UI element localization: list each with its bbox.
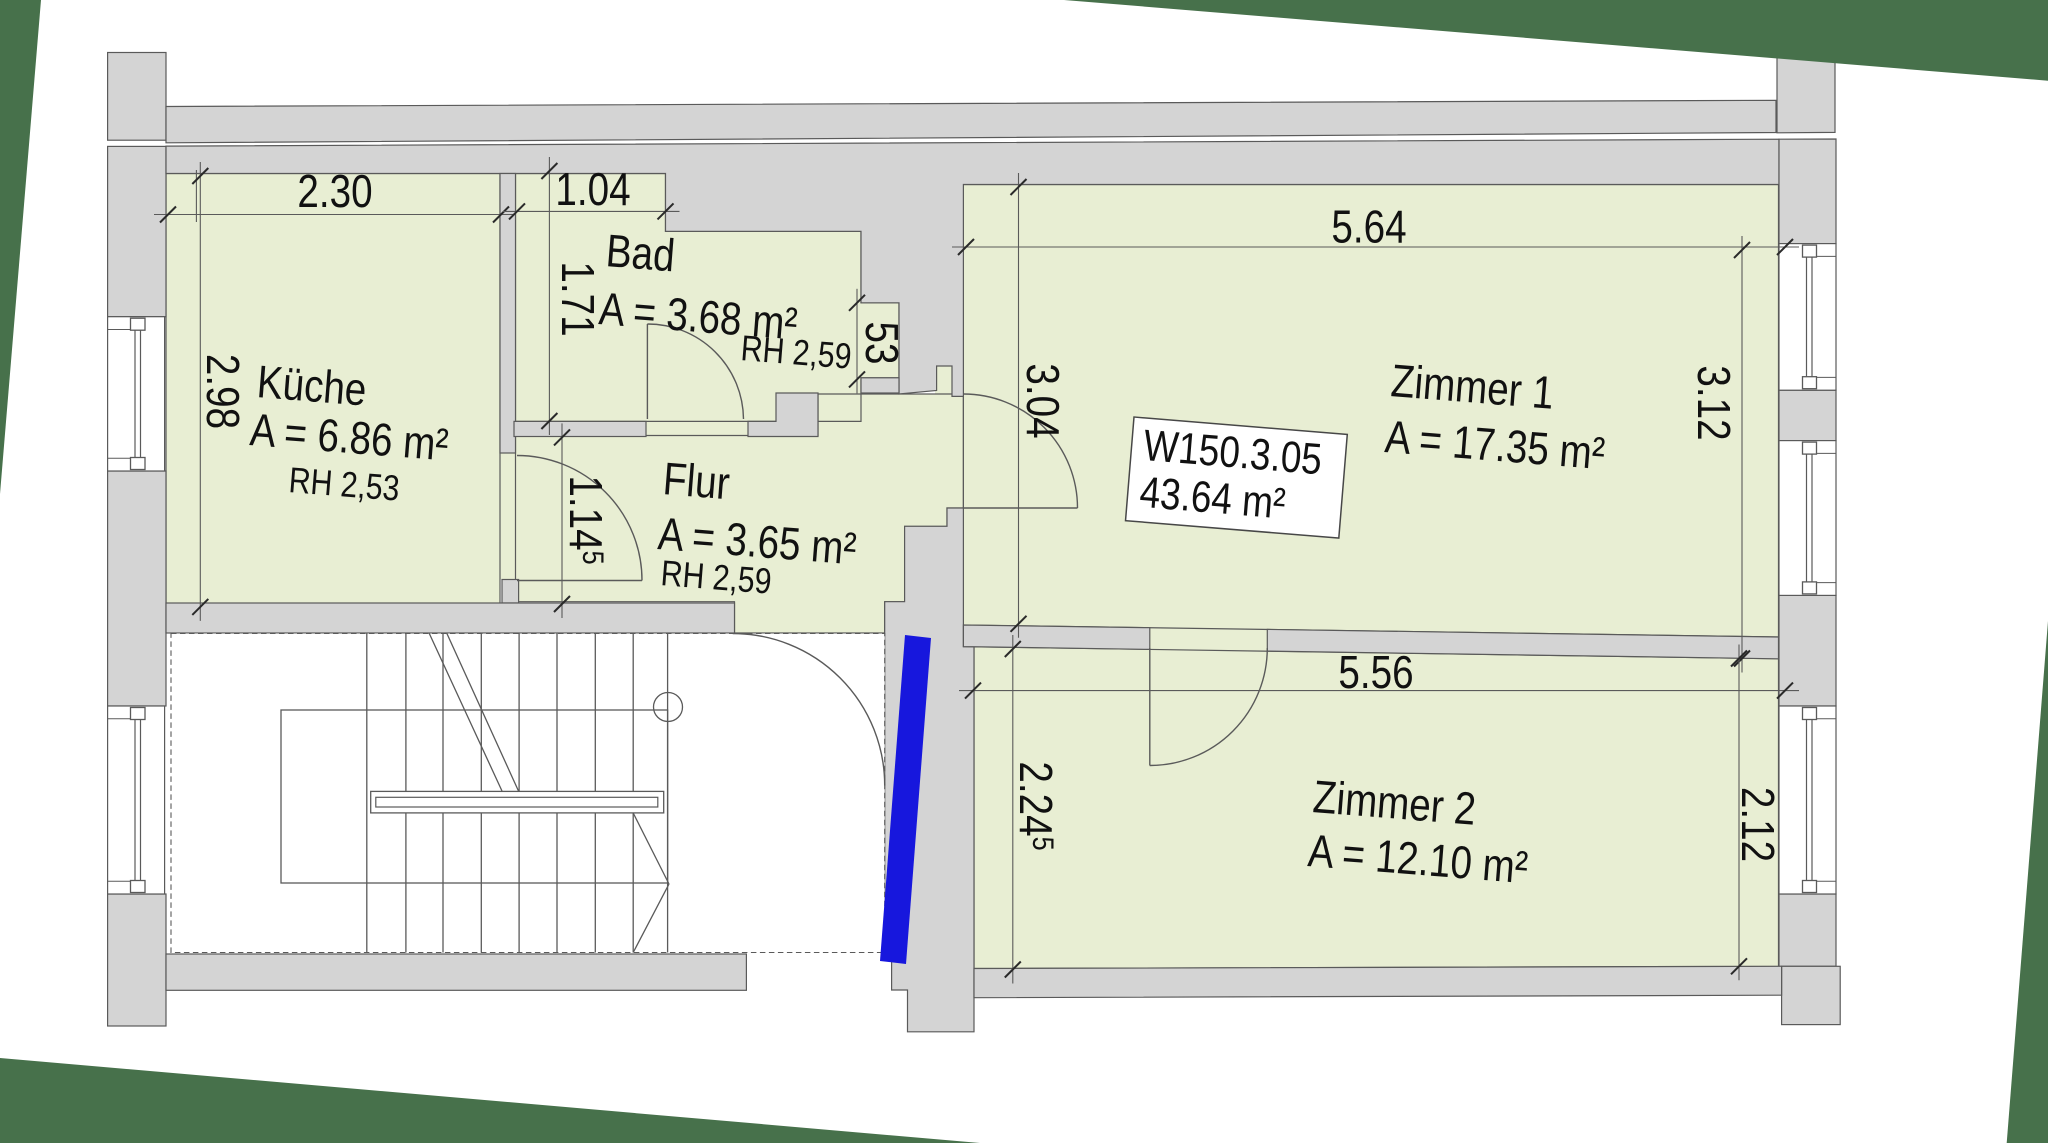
svg-text:Flur: Flur: [661, 453, 731, 509]
svg-text:3.12: 3.12: [1688, 365, 1739, 440]
svg-text:2.12: 2.12: [1732, 787, 1783, 862]
svg-text:3.04: 3.04: [1017, 363, 1068, 438]
svg-text:5.56: 5.56: [1338, 647, 1413, 698]
svg-text:1.04: 1.04: [555, 164, 630, 215]
svg-text:5.64: 5.64: [1331, 201, 1406, 252]
svg-text:1.71: 1.71: [552, 261, 603, 336]
svg-text:2.98: 2.98: [197, 354, 248, 429]
svg-text:2.30: 2.30: [297, 166, 372, 217]
svg-text:53: 53: [856, 322, 907, 365]
svg-text:Bad: Bad: [604, 225, 677, 281]
